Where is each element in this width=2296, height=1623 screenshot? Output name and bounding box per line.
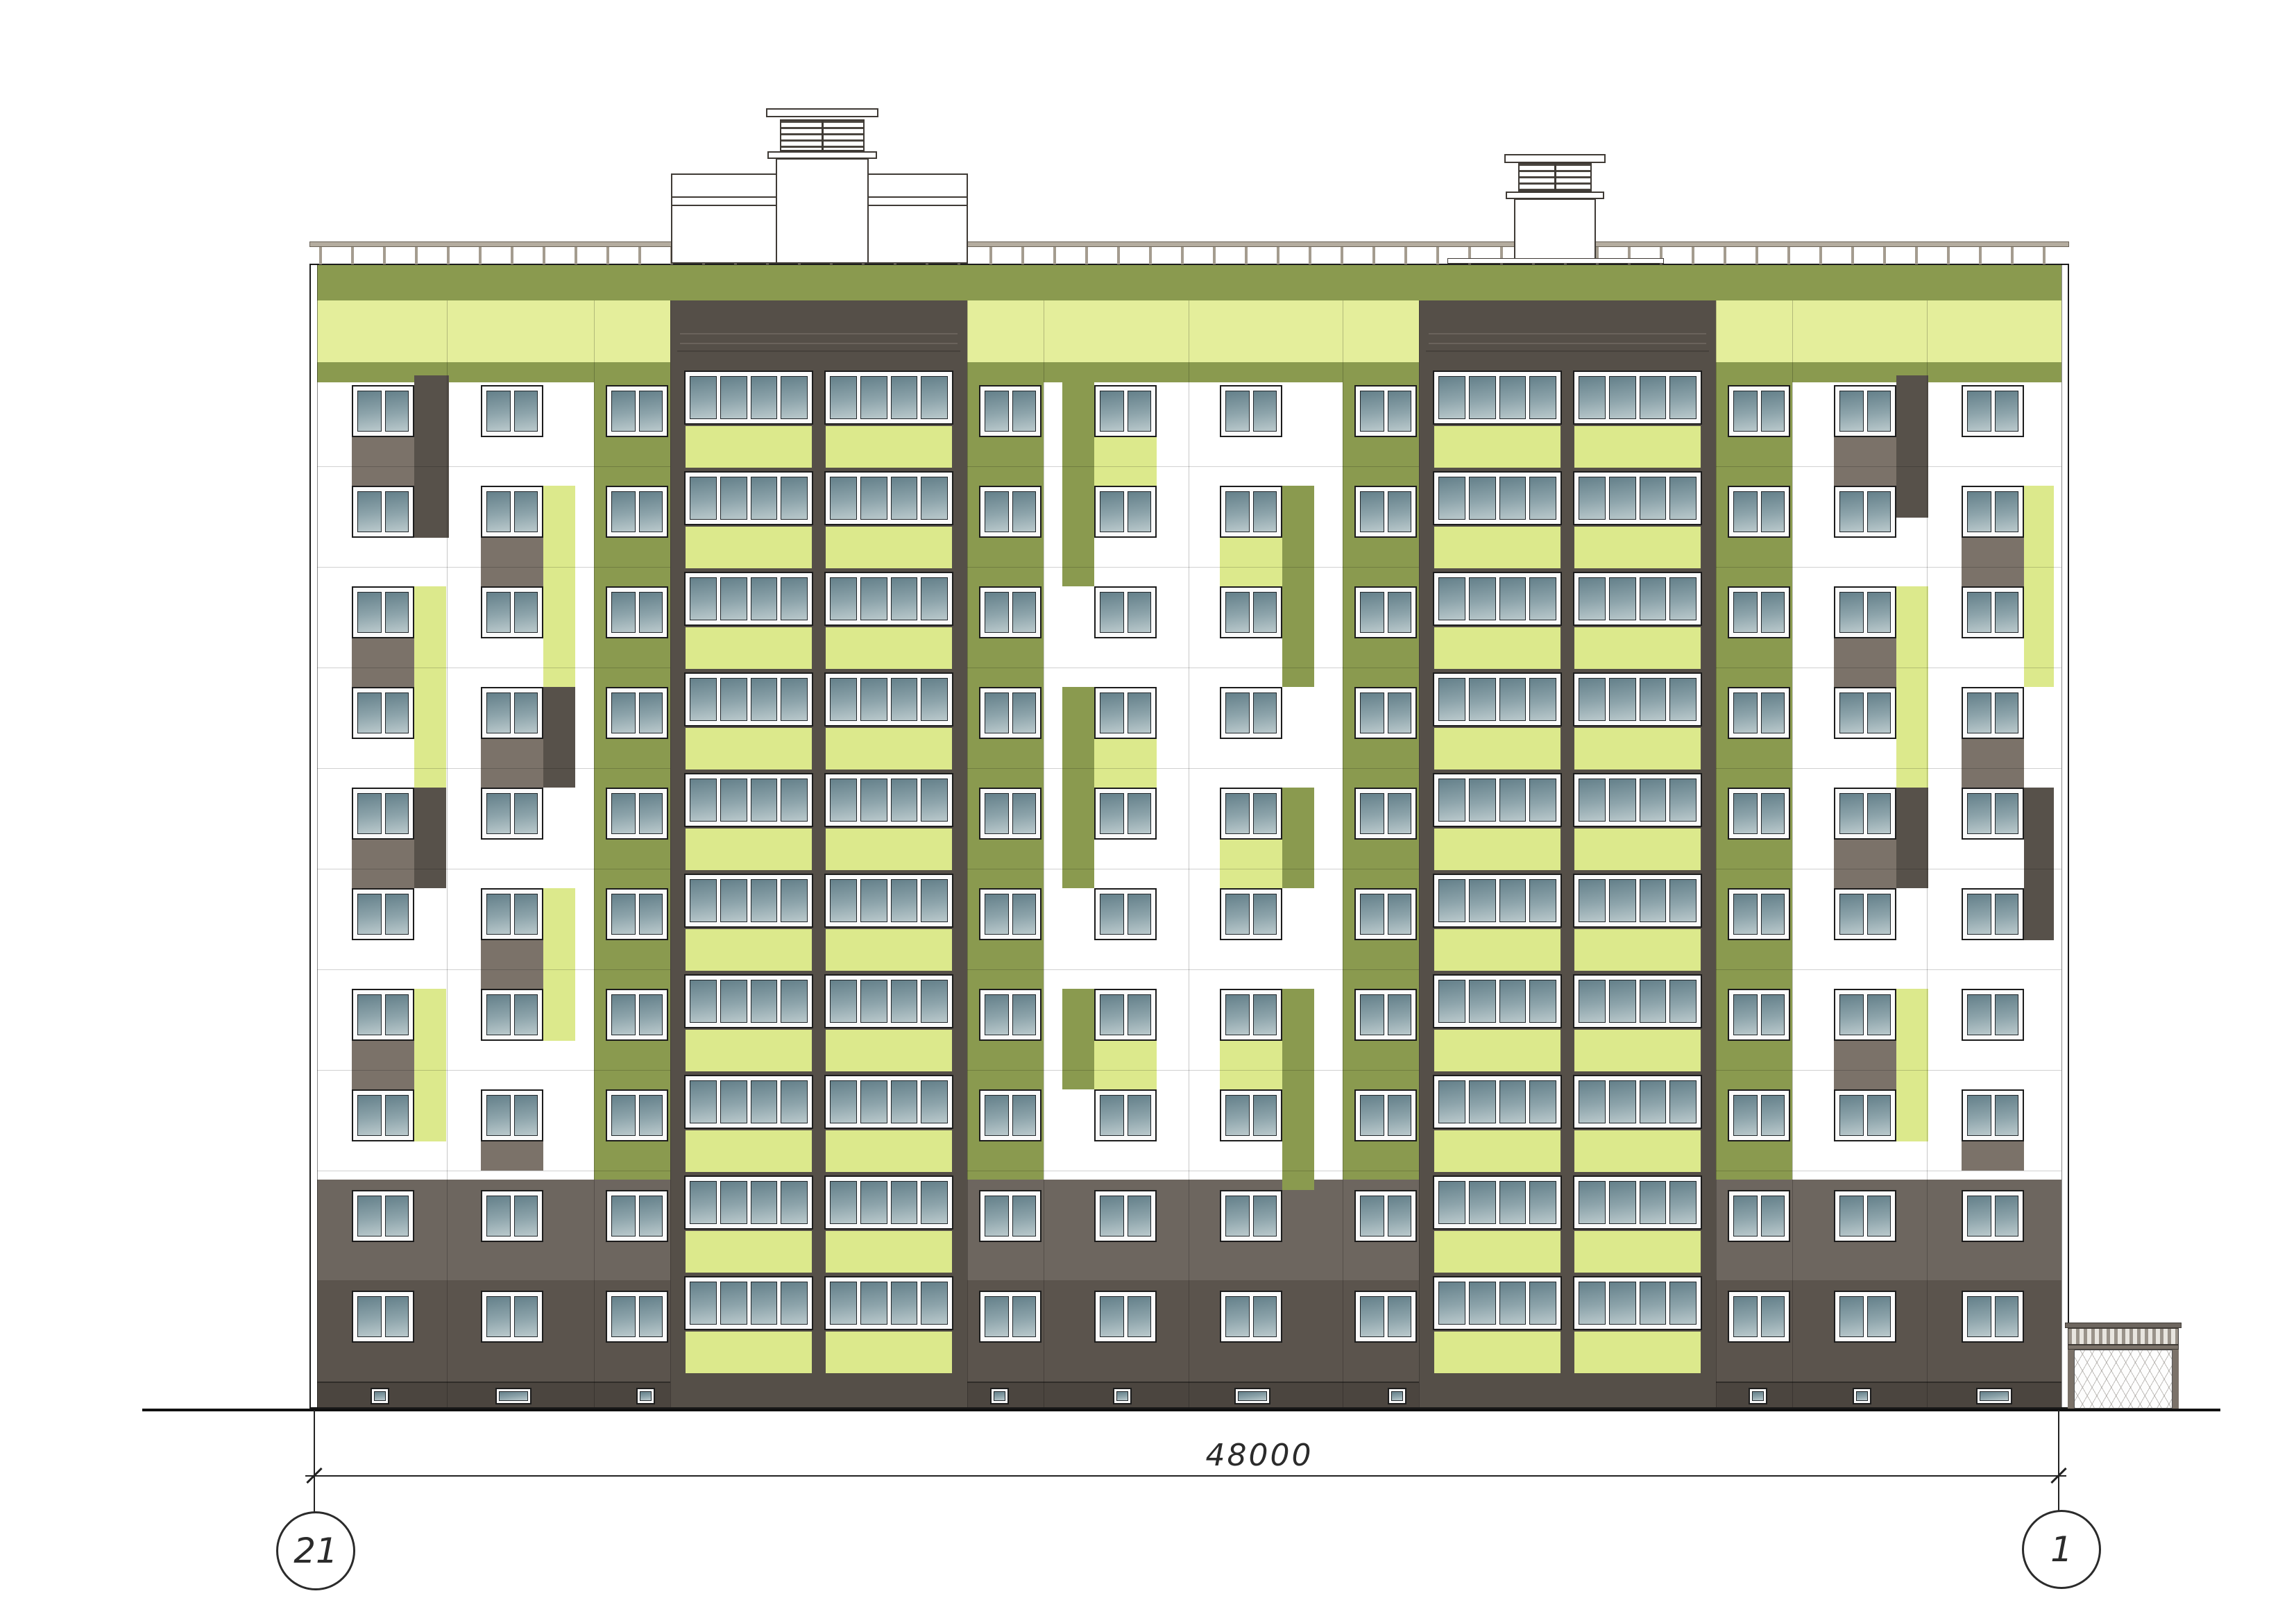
parapet-post	[1404, 247, 1407, 264]
parapet-post	[1979, 247, 1982, 264]
parapet-post	[1947, 247, 1950, 264]
vent-plate	[1447, 258, 1664, 264]
parapet-post	[1341, 247, 1343, 264]
dimension-line	[305, 1475, 2066, 1477]
porch-fascia	[2068, 1328, 2179, 1345]
parapet-post	[543, 247, 545, 264]
parapet-post	[383, 247, 386, 264]
parapet-post	[1692, 247, 1694, 264]
porch-plate	[2068, 1345, 2179, 1350]
parapet-post	[479, 247, 482, 264]
parapet-post	[1915, 247, 1918, 264]
porch-canopy	[2065, 1323, 2182, 1328]
vent-shaft	[1514, 198, 1596, 264]
parapet-post	[511, 247, 513, 264]
parapet-post	[447, 247, 450, 264]
extension-line	[2058, 1410, 2059, 1513]
vent-cap	[766, 108, 878, 117]
porch-post	[2172, 1350, 2179, 1409]
vent-base	[767, 151, 877, 159]
vent-louver-divider	[822, 119, 824, 151]
dimension-label: 48000	[1138, 1438, 1381, 1473]
parapet-post	[2043, 247, 2046, 264]
parapet-post	[1787, 247, 1790, 264]
parapet-post	[1724, 247, 1726, 264]
axis-bubble-1: 1	[2022, 1510, 2101, 1589]
ground-line	[142, 1409, 2220, 1411]
parapet-post	[415, 247, 418, 264]
parapet-rail	[309, 241, 2069, 247]
parapet-post	[1053, 247, 1056, 264]
vent-cap	[1504, 154, 1606, 163]
parapet-post	[1149, 247, 1152, 264]
parapet-post	[1245, 247, 1248, 264]
parapet-post	[351, 247, 354, 264]
parapet-post	[319, 247, 322, 264]
parapet-post	[1883, 247, 1886, 264]
parapet-post	[1372, 247, 1375, 264]
facade-outline	[309, 264, 2069, 1409]
elevation-drawing: 48000 21 1	[0, 0, 2296, 1623]
parapet-post	[989, 247, 992, 264]
pilaster-line	[2061, 264, 2062, 1409]
axis-left-label: 21	[294, 1531, 338, 1571]
vent-base	[1506, 192, 1604, 199]
parapet-post	[2011, 247, 2014, 264]
pilaster-line	[317, 264, 318, 1409]
parapet-post	[1213, 247, 1216, 264]
parapet-post	[1085, 247, 1088, 264]
parapet-post	[1309, 247, 1311, 264]
parapet-post	[1851, 247, 1854, 264]
vent-shaft	[776, 158, 869, 264]
parapet-post	[1181, 247, 1184, 264]
parapet-post	[1021, 247, 1024, 264]
parapet-post	[575, 247, 577, 264]
parapet-post	[638, 247, 641, 264]
extension-line	[314, 1410, 315, 1513]
vent-louver-divider	[1554, 162, 1556, 192]
facade-graphics	[0, 0, 2296, 1623]
parapet-post	[1277, 247, 1279, 264]
parapet-post	[1755, 247, 1758, 264]
parapet-post	[1436, 247, 1439, 264]
parapet-post	[1117, 247, 1120, 264]
axis-right-label: 1	[2050, 1529, 2073, 1570]
porch-post	[2068, 1350, 2074, 1409]
parapet-post	[606, 247, 609, 264]
axis-bubble-21: 21	[276, 1511, 355, 1590]
porch-lattice	[2074, 1350, 2172, 1409]
parapet-post	[1819, 247, 1822, 264]
